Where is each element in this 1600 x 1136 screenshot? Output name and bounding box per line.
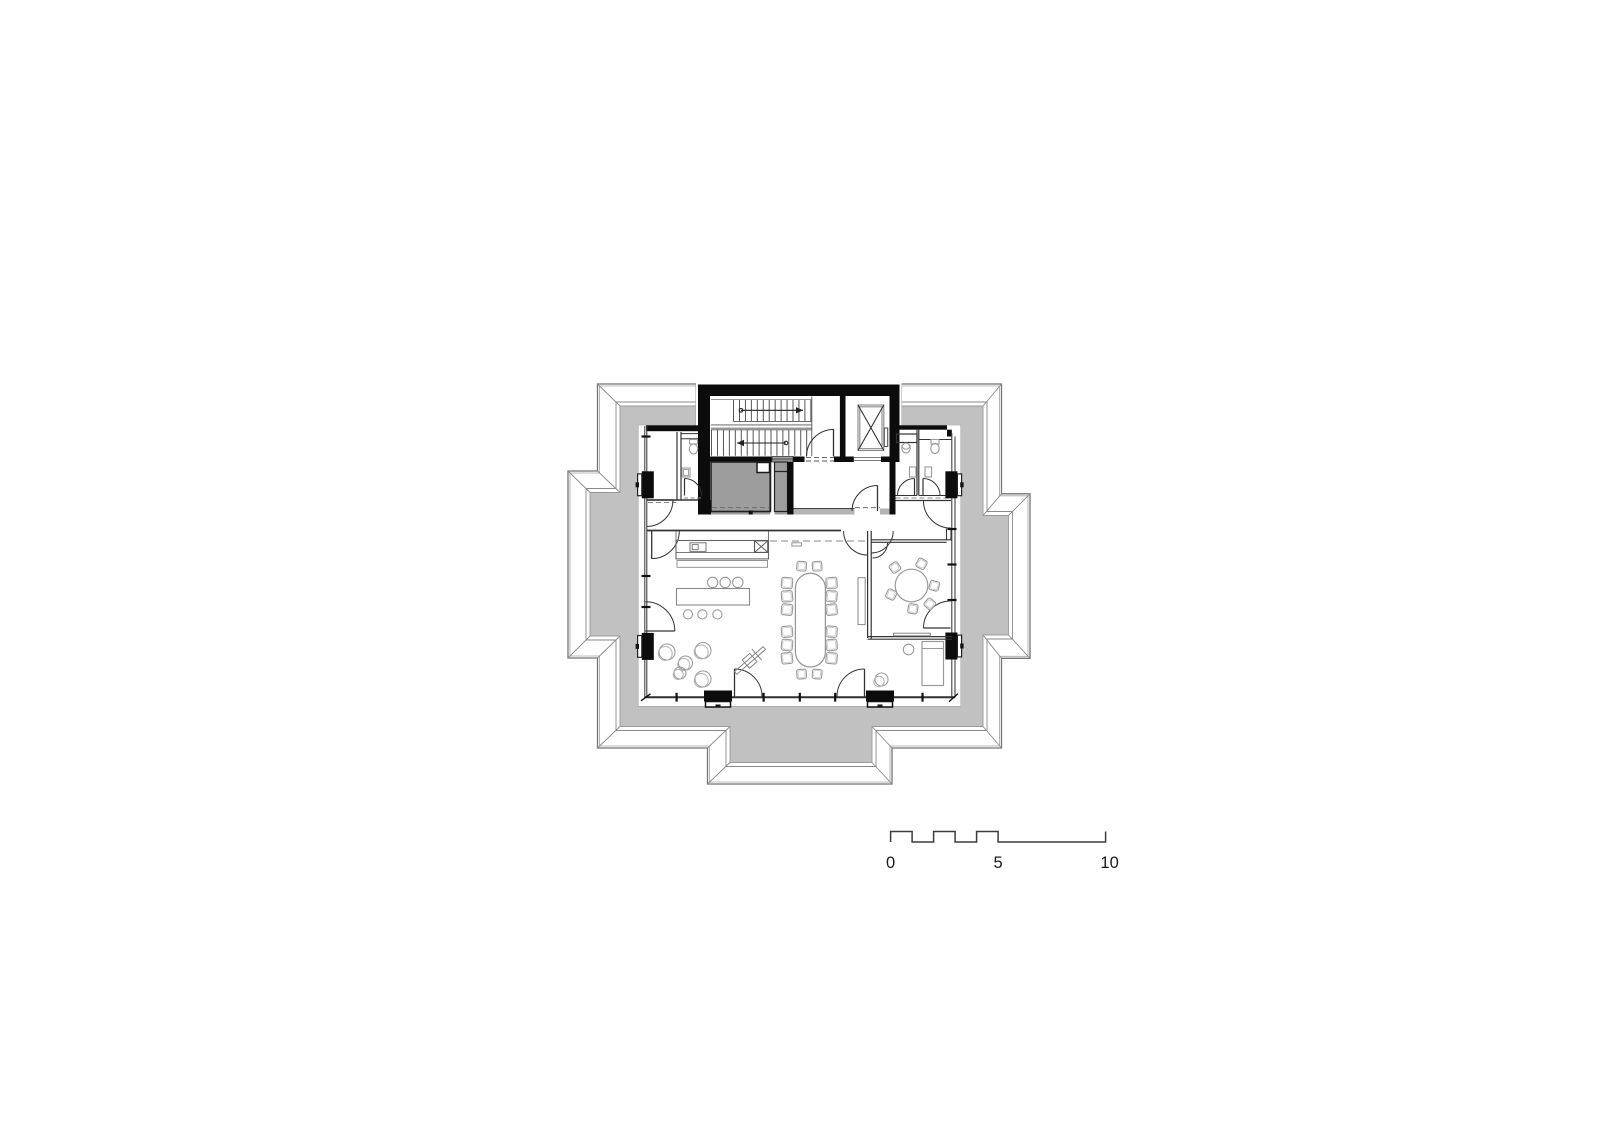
svg-text:0: 0: [886, 854, 895, 872]
svg-text:5: 5: [994, 854, 1003, 872]
svg-text:10: 10: [1100, 854, 1118, 872]
